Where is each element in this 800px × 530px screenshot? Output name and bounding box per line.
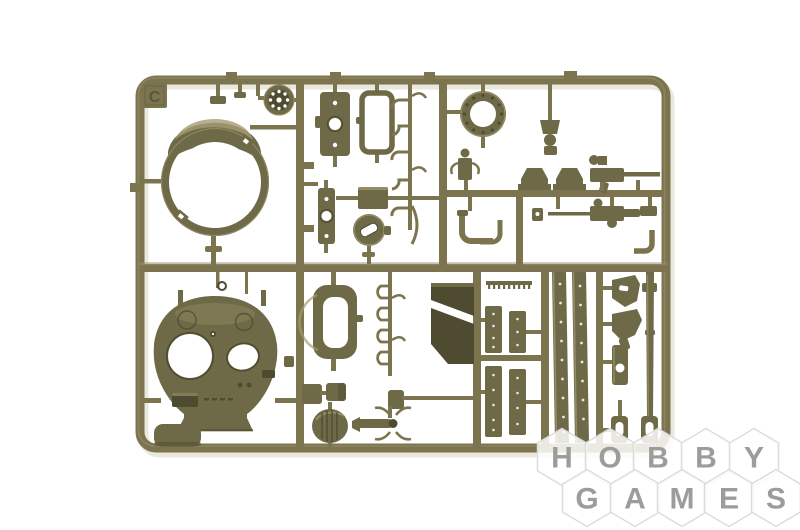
round-hatch-with-slot bbox=[353, 206, 417, 264]
frame-nub bbox=[424, 72, 435, 80]
watermark-letter: B bbox=[695, 442, 717, 475]
watermark-letter: M bbox=[670, 483, 695, 516]
frame-nub bbox=[330, 72, 341, 80]
frame-nub bbox=[226, 72, 237, 80]
watermark-letter: Y bbox=[744, 442, 764, 475]
curved-rod bbox=[412, 206, 417, 244]
watermark-letter: E bbox=[719, 483, 739, 516]
turret-shell-ring bbox=[144, 119, 298, 268]
rectangular-frame bbox=[356, 84, 392, 163]
frame-nub bbox=[130, 183, 140, 192]
watermark-letter: H bbox=[551, 442, 573, 475]
fender-rails bbox=[552, 272, 589, 443]
corner-plate bbox=[154, 424, 201, 447]
grab-handle-column-top bbox=[392, 84, 426, 230]
hatch-plate-with-holes bbox=[315, 84, 350, 167]
hanging-periscope bbox=[540, 84, 560, 155]
sprue-letter: C bbox=[149, 89, 161, 106]
spade-grip-part bbox=[352, 406, 411, 439]
angled-brackets bbox=[603, 275, 642, 351]
gun-barrel bbox=[642, 272, 657, 420]
watermark-letter: B bbox=[647, 442, 669, 475]
watermark-letter: O bbox=[598, 442, 621, 475]
watermark-letter: G bbox=[575, 483, 598, 516]
sprue-letter-tab: C bbox=[142, 83, 167, 108]
grab-handles bbox=[378, 272, 405, 376]
small-box-part bbox=[336, 187, 439, 209]
watermark: H O B B Y G A M bbox=[538, 429, 800, 527]
small-boxes bbox=[302, 383, 473, 409]
machine-gun-50cal bbox=[589, 155, 660, 194]
periscope-guards bbox=[518, 168, 586, 190]
machine-gun-second bbox=[532, 197, 640, 228]
watermark-letter: S bbox=[766, 483, 786, 516]
ribbed-oval-part bbox=[312, 402, 348, 448]
turret-ring-flange bbox=[447, 84, 506, 148]
right-cell-small-pipes bbox=[634, 197, 657, 251]
elbow-pipes bbox=[457, 197, 500, 242]
turret-roof-with-openings bbox=[144, 272, 296, 432]
sprue-photo-svg: C bbox=[0, 0, 800, 530]
bar-with-hole bbox=[603, 345, 628, 385]
riveted-plates bbox=[481, 306, 541, 437]
winged-periscope bbox=[451, 149, 479, 192]
hatch-cover-frame bbox=[299, 272, 363, 371]
small-plate-with-holes bbox=[318, 180, 335, 253]
watermark-letter: A bbox=[624, 483, 646, 516]
product-photo: C bbox=[0, 0, 800, 530]
comb-strip bbox=[486, 281, 532, 289]
wedge-plates bbox=[431, 283, 474, 364]
frame-nub bbox=[564, 71, 577, 80]
